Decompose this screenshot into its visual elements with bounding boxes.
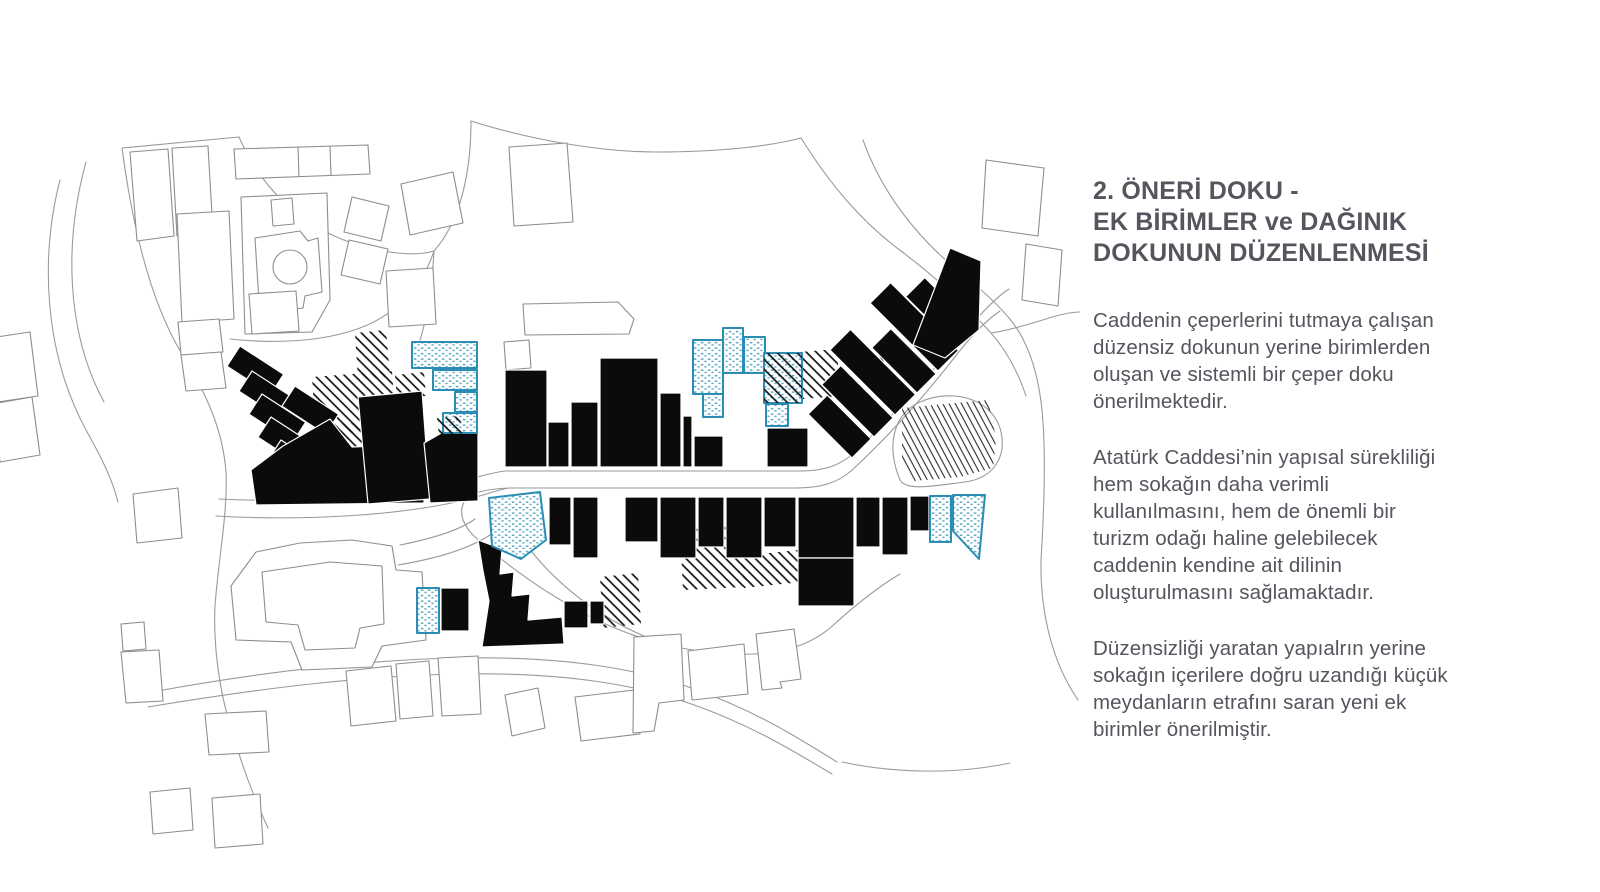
paragraph-1: Caddenin çeperlerini tutmaya çalışan düz… — [1093, 307, 1451, 415]
site-plan-figure — [0, 0, 1080, 892]
heading-line-2: EK BİRİMLER ve DAĞINIK — [1093, 207, 1451, 238]
paragraph-3: Düzensizliği yaratan yapıalrın yerine so… — [1093, 635, 1451, 743]
heading-line-1: 2. ÖNERİ DOKU - — [1093, 176, 1451, 207]
section-heading: 2. ÖNERİ DOKU - EK BİRİMLER ve DAĞINIK D… — [1093, 176, 1451, 269]
heading-line-3: DOKUNUN DÜZENLENMESİ — [1093, 238, 1451, 269]
slide: 2. ÖNERİ DOKU - EK BİRİMLER ve DAĞINIK D… — [0, 0, 1600, 892]
paragraph-2: Atatürk Caddesi’nin yapısal sürekliliği … — [1093, 444, 1451, 606]
site-plan-svg — [0, 0, 1080, 892]
description-panel: 2. ÖNERİ DOKU - EK BİRİMLER ve DAĞINIK D… — [1093, 176, 1451, 772]
